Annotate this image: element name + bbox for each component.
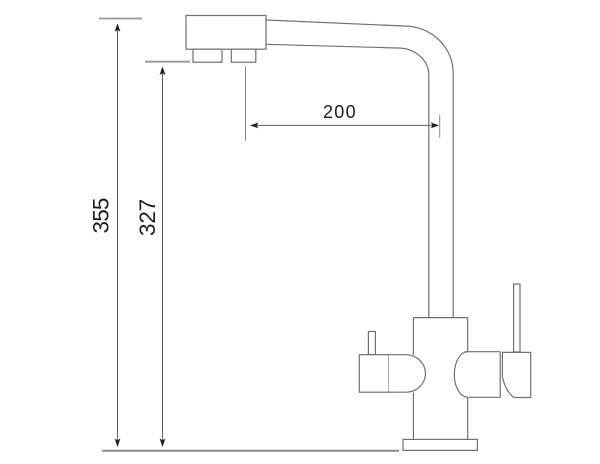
svg-text:327: 327: [135, 199, 160, 236]
svg-text:355: 355: [89, 198, 114, 233]
svg-text:200: 200: [323, 102, 357, 122]
